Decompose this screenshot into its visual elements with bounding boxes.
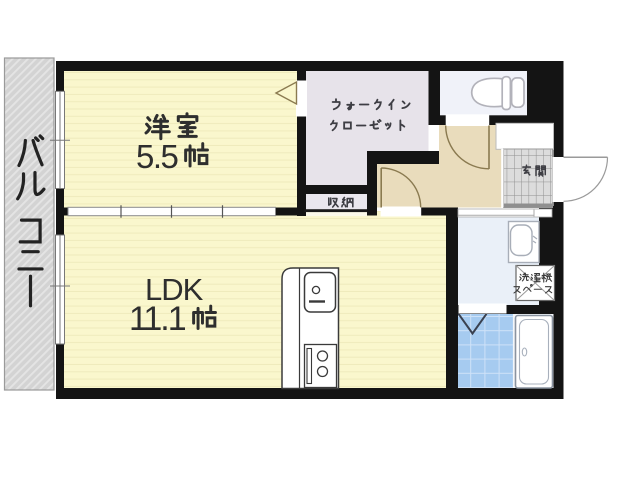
svg-text:11.1: 11.1 — [129, 300, 186, 338]
svg-text:5.5: 5.5 — [136, 138, 178, 175]
